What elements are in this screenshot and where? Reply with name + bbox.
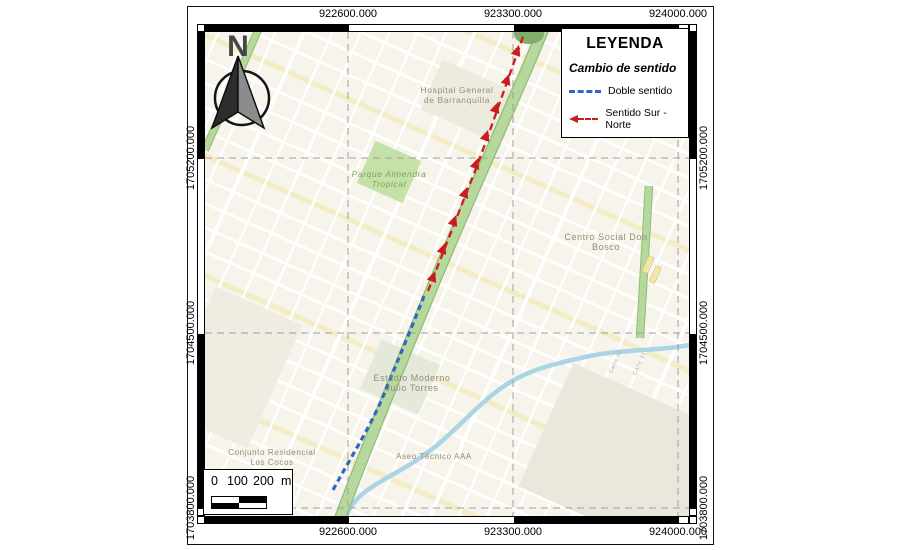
grid-coord-label: 1704500.000 (185, 301, 197, 365)
scale-bar: 0 100 200 m (203, 469, 293, 515)
neatline-left (197, 32, 205, 516)
grid-coord-label: 922600.000 (319, 526, 377, 538)
neatline-corner (197, 24, 205, 32)
arrowhead-icon (569, 115, 578, 123)
scale-number: 100 (227, 474, 248, 488)
legend-panel: LEYENDA Cambio de sentido Doble sentido … (561, 28, 689, 138)
grid-coord-label: 923300.000 (484, 8, 542, 20)
legend-item-sur-norte: Sentido Sur - Norte (569, 107, 688, 131)
grid-coord-label: 922600.000 (319, 8, 377, 20)
neatline-corner (197, 516, 205, 524)
scale-unit: m (281, 474, 291, 488)
dashed-line-icon (578, 118, 598, 120)
legend-title: LEYENDA (566, 35, 684, 53)
map-layout-page: 922600.000 923300.000 924000.000 922600.… (0, 0, 900, 550)
neatline-corner (689, 516, 697, 524)
north-arrow-right-icon (238, 56, 264, 128)
legend-subtitle: Cambio de sentido (569, 61, 688, 75)
grid-coord-label: 1705200.000 (185, 126, 197, 190)
legend-item-label: Doble sentido (608, 85, 672, 97)
north-arrow-svg: N (206, 24, 280, 138)
grid-coord-label: 1703800.000 (698, 476, 710, 540)
grid-coord-label: 924000.000 (649, 8, 707, 20)
neatline-right (689, 32, 697, 516)
scale-number: 0 (211, 474, 218, 488)
scale-bar-segments (211, 496, 267, 509)
north-arrow: N (206, 24, 280, 143)
scale-number: 200 (253, 474, 274, 488)
place-label: Aseo Técnico AAA (396, 452, 472, 461)
grid-coord-label: 1705200.000 (698, 126, 710, 190)
place-label: Hospital Generalde Barranquilla (421, 85, 494, 105)
legend-item-label: Sentido Sur - Norte (605, 107, 688, 131)
grid-coord-label: 1703800.000 (185, 476, 197, 540)
neatline-corner (689, 24, 697, 32)
dashed-line-swatch (569, 90, 601, 93)
dashed-arrow-swatch (569, 115, 598, 123)
legend-item-doble-sentido: Doble sentido (569, 85, 688, 97)
grid-coord-label: 1704500.000 (698, 301, 710, 365)
grid-coord-label: 923300.000 (484, 526, 542, 538)
neatline-bottom (205, 516, 689, 524)
